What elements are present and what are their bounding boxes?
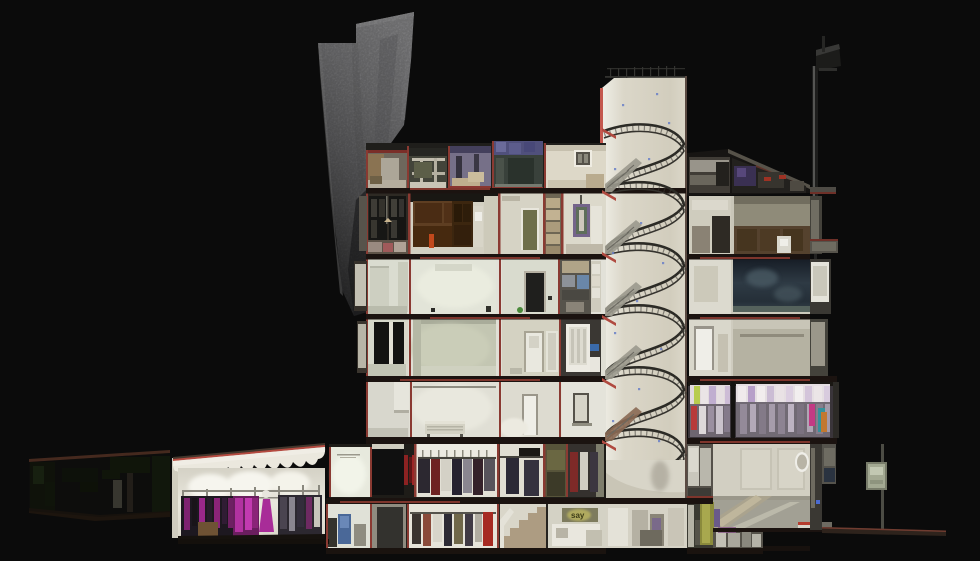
svg-text:say: say — [571, 511, 585, 520]
